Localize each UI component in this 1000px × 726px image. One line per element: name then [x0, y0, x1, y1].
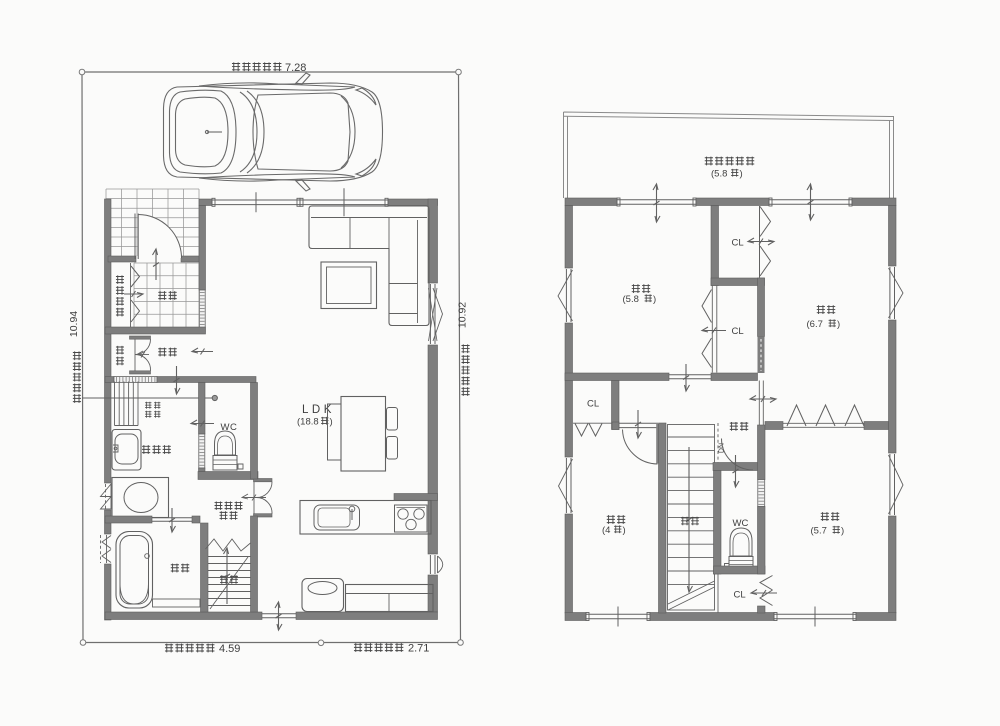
- svg-text:(5.7: (5.7: [811, 526, 827, 537]
- svg-text:10.92: 10.92: [457, 302, 469, 328]
- svg-text:): ): [841, 526, 844, 537]
- svg-text:): ): [740, 169, 743, 180]
- svg-text:(6.7: (6.7: [807, 319, 823, 330]
- svg-text:CL: CL: [587, 399, 599, 410]
- svg-text:WC: WC: [733, 518, 749, 529]
- svg-text:(4: (4: [602, 525, 610, 536]
- svg-text:CL: CL: [734, 590, 746, 601]
- svg-text:10.94: 10.94: [68, 311, 80, 337]
- svg-text:CL: CL: [732, 238, 744, 249]
- svg-text:7.28: 7.28: [285, 62, 306, 74]
- svg-text:2.71: 2.71: [408, 643, 429, 655]
- svg-text:4.59: 4.59: [219, 643, 240, 655]
- svg-text:(18.8: (18.8: [297, 417, 319, 428]
- svg-text:): ): [653, 294, 656, 305]
- svg-text:CL: CL: [732, 326, 744, 337]
- svg-text:): ): [330, 417, 333, 428]
- svg-text:LDK: LDK: [302, 404, 335, 416]
- svg-text:): ): [623, 525, 626, 536]
- svg-text:(5.8: (5.8: [711, 169, 727, 180]
- svg-text:): ): [837, 319, 840, 330]
- svg-text:(5.8: (5.8: [623, 294, 639, 305]
